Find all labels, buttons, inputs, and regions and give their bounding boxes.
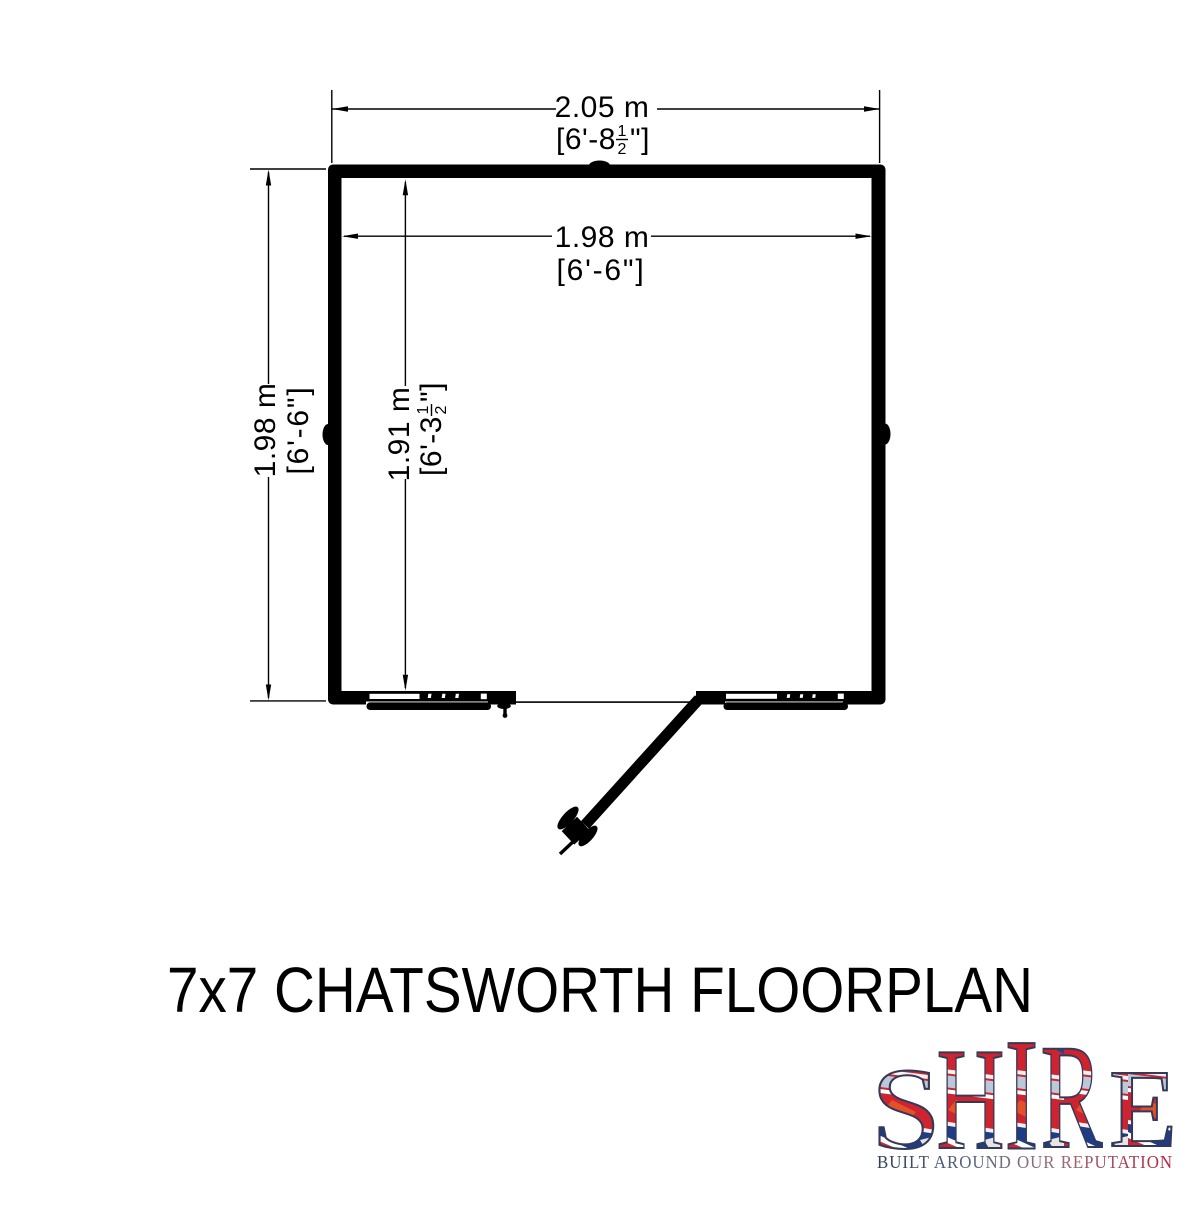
svg-text:1.98 m: 1.98 m	[249, 383, 282, 478]
svg-text:1: 1	[415, 405, 432, 414]
svg-text:2: 2	[618, 141, 627, 158]
svg-text:BUILT AROUND OUR REPUTATION: BUILT AROUND OUR REPUTATION	[877, 1152, 1173, 1172]
svg-text:[6'-6"]: [6'-6"]	[556, 254, 645, 287]
svg-text:1.98 m: 1.98 m	[555, 221, 650, 254]
svg-text:[6'-8: [6'-8	[556, 123, 616, 156]
svg-text:1.91 m: 1.91 m	[383, 387, 416, 482]
svg-text:2.05 m: 2.05 m	[555, 91, 650, 124]
svg-text:[6'-6"]: [6'-6"]	[282, 385, 315, 474]
svg-text:"]: "]	[415, 382, 448, 402]
svg-text:7x7 CHATSWORTH FLOORPLAN: 7x7 CHATSWORTH FLOORPLAN	[167, 954, 1033, 1026]
svg-text:1: 1	[618, 123, 627, 140]
svg-text:2: 2	[433, 405, 450, 414]
svg-text:[6'-3: [6'-3	[415, 416, 448, 476]
svg-text:"]: "]	[630, 123, 650, 156]
